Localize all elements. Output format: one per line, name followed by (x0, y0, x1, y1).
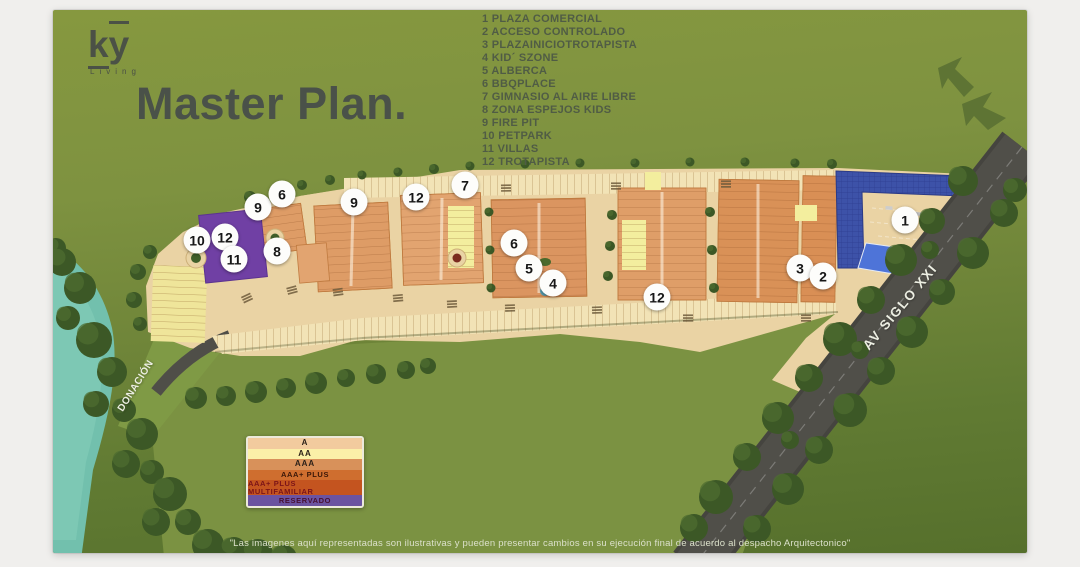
map-marker-1: 1 (892, 207, 919, 234)
legend-rows: AAAAAAAAA+ PLUSAAA+ PLUS MULTIFAMILIARRE… (248, 438, 362, 506)
map-marker-2: 2 (810, 263, 837, 290)
map-marker-5: 5 (516, 255, 543, 282)
legend-row: A (248, 438, 362, 449)
map-marker-12: 12 (644, 284, 671, 311)
poster-canvas: ky Living Master Plan. 1 PLAZA COMERCIAL… (53, 10, 1027, 553)
disclaimer-text: "Las imagenes aquí representadas son ilu… (53, 538, 1027, 549)
legend-row: AAA (248, 459, 362, 470)
map-marker-10: 10 (184, 227, 211, 254)
map-marker-4: 4 (540, 270, 567, 297)
lot-type-legend: AAAAAAAAA+ PLUSAAA+ PLUS MULTIFAMILIARRE… (246, 436, 364, 508)
map-marker-11: 11 (221, 246, 248, 273)
overlay-layer: ky Living Master Plan. 1 PLAZA COMERCIAL… (53, 10, 1027, 553)
map-marker-8: 8 (264, 238, 291, 265)
map-marker-6: 6 (501, 230, 528, 257)
legend-row: AAA+ PLUS MULTIFAMILIAR (248, 480, 362, 495)
map-marker-12: 12 (403, 184, 430, 211)
legend-row: AA (248, 449, 362, 460)
master-plan-page: { "brand": { "name": "ky", "tagline": "L… (0, 0, 1080, 567)
map-marker-9: 9 (245, 194, 272, 221)
map-marker-9: 9 (341, 189, 368, 216)
markers-layer: 101211968912765412321 (53, 10, 1027, 553)
legend-row: RESERVADO (248, 495, 362, 506)
map-marker-7: 7 (452, 172, 479, 199)
map-marker-6: 6 (269, 181, 296, 208)
